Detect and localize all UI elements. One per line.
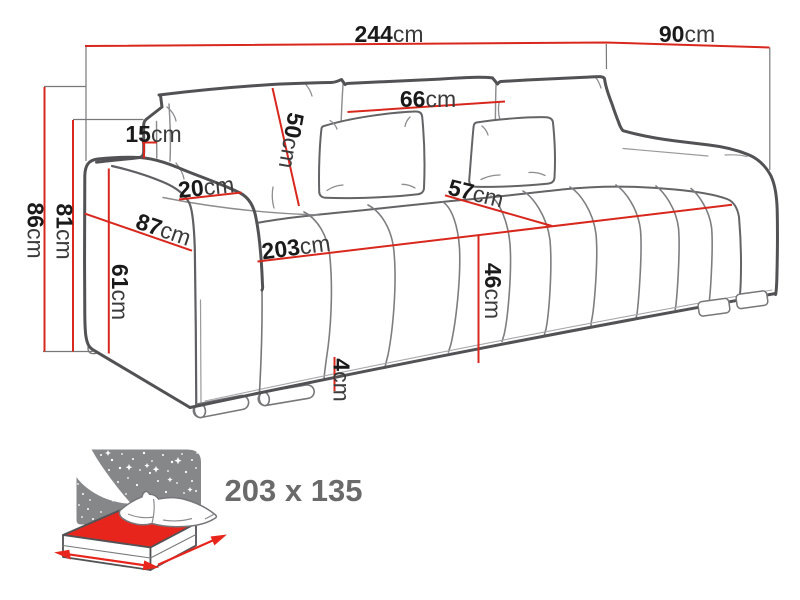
svg-text:203 x 135: 203 x 135 xyxy=(225,473,363,508)
svg-text:86cm: 86cm xyxy=(23,202,49,258)
svg-text:61cm: 61cm xyxy=(107,264,133,320)
svg-text:81cm: 81cm xyxy=(52,203,78,259)
svg-text:4cm: 4cm xyxy=(329,358,355,401)
svg-text:15cm: 15cm xyxy=(125,121,181,147)
svg-text:90cm: 90cm xyxy=(659,21,715,47)
svg-text:46cm: 46cm xyxy=(480,263,506,319)
svg-text:66cm: 66cm xyxy=(400,86,456,112)
svg-text:244cm: 244cm xyxy=(354,21,423,47)
